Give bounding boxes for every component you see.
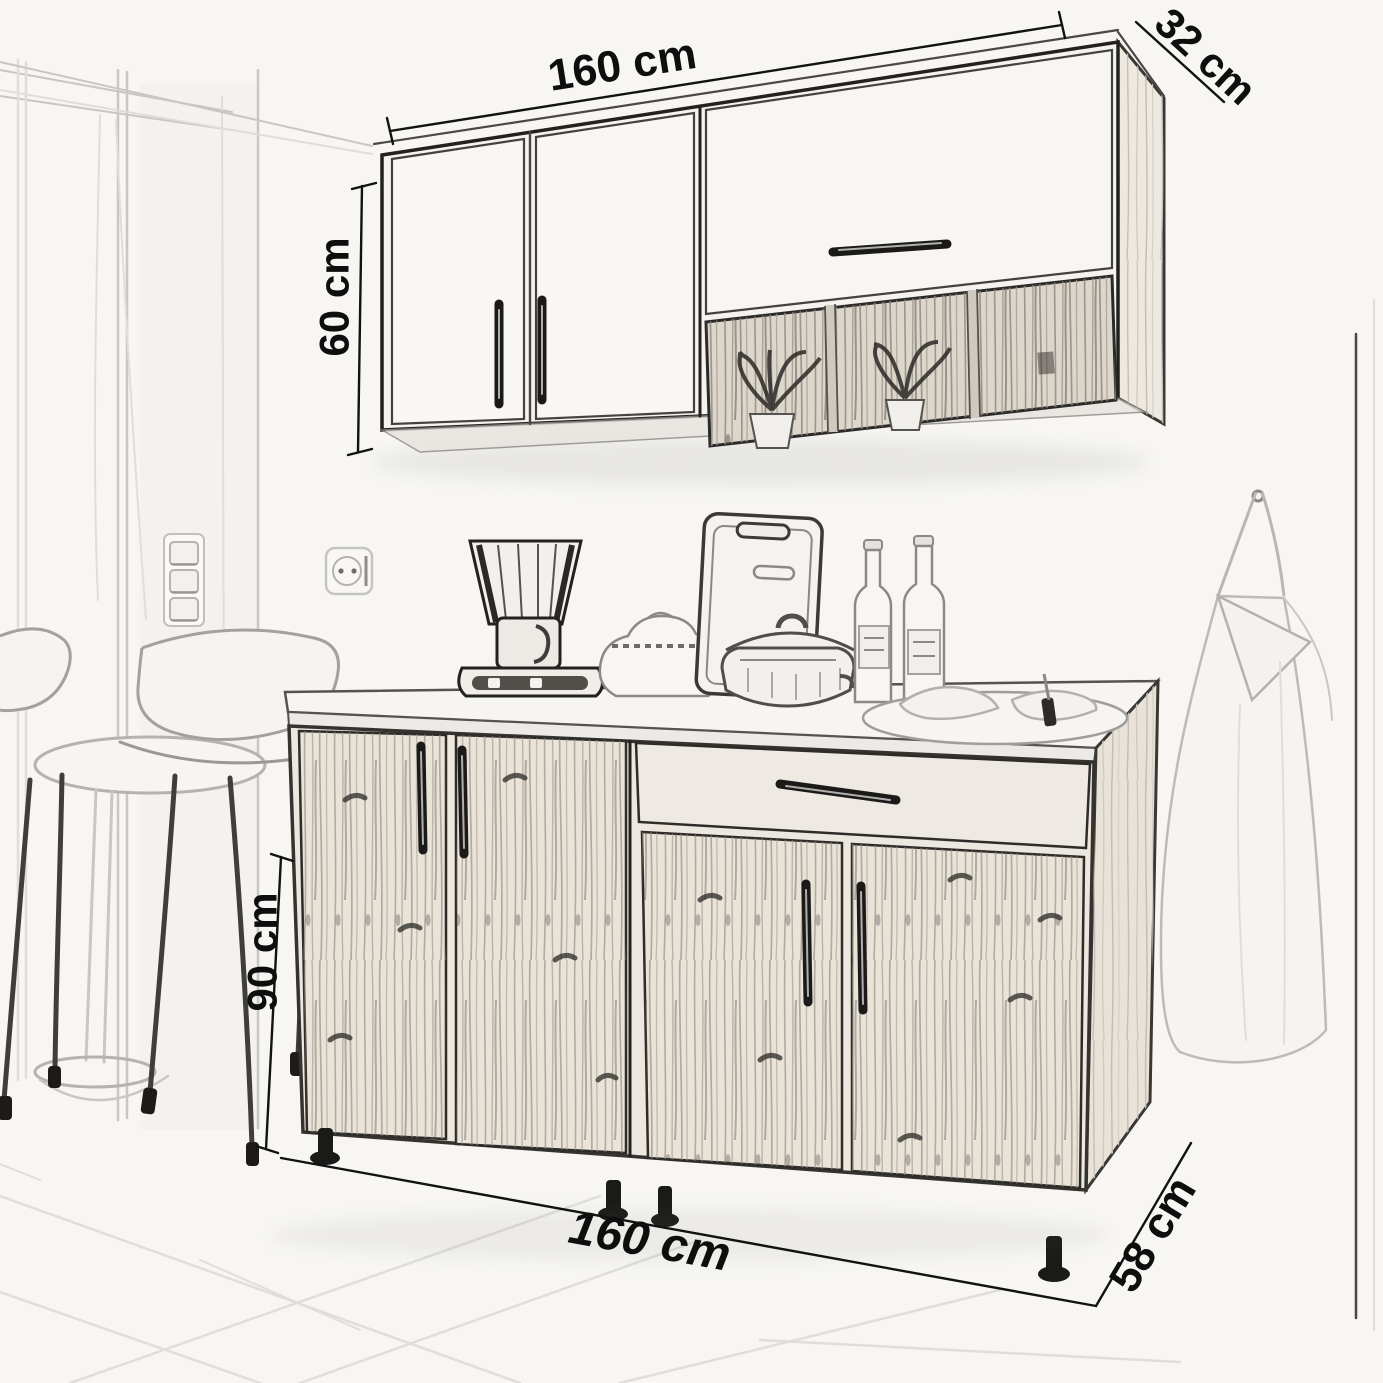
cabinet-door: [456, 735, 626, 1153]
power-outlet: [326, 548, 372, 594]
wall-switch: [164, 534, 204, 626]
sketch-canvas: 160 cm 32 cm 60 cm 90 cm 160 cm 58 cm: [0, 0, 1383, 1383]
kitchen-dimension-sketch: 160 cm 32 cm 60 cm 90 cm 160 cm 58 cm: [0, 0, 1383, 1383]
dim-base-height-label: 90 cm: [239, 892, 286, 1011]
cabinet-door: [852, 844, 1084, 1188]
board-handle-slot: [737, 523, 790, 540]
shelf-box: [1037, 351, 1054, 374]
wall-cabinet-door-left: [392, 139, 524, 424]
wall-cabinet-door-right: [536, 113, 694, 419]
dim-wall-height-label: 60 cm: [311, 237, 358, 356]
